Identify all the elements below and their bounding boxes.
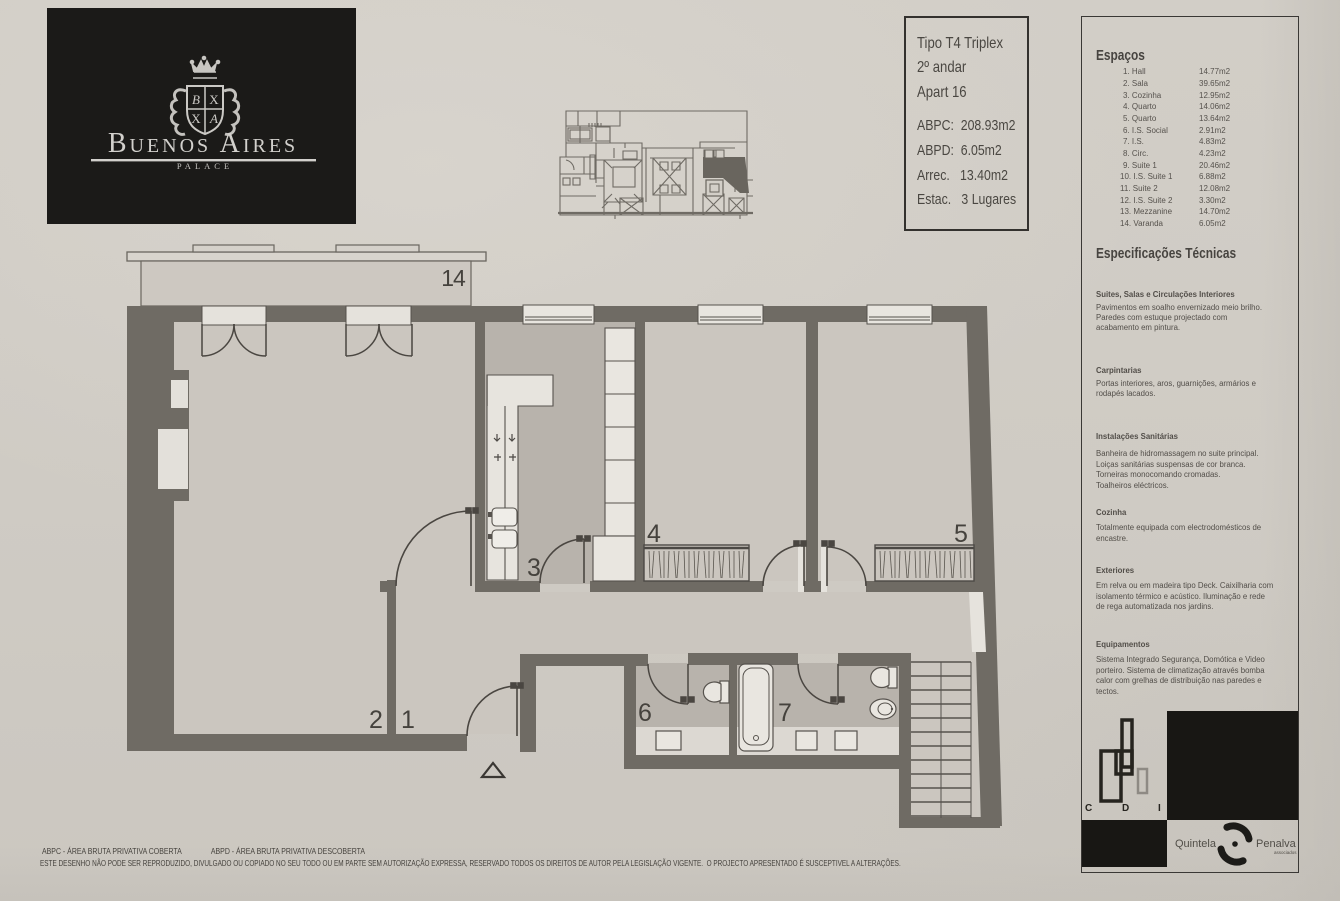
svg-text:I: I [1158, 803, 1161, 814]
svg-text:D: D [1122, 803, 1129, 814]
svg-text:14: 14 [441, 265, 466, 291]
svg-text:Quintela: Quintela [1175, 838, 1217, 850]
svg-text:7: 7 [778, 699, 792, 727]
svg-text:X: X [191, 111, 201, 126]
svg-text:6: 6 [638, 699, 652, 727]
svg-text:2: 2 [369, 706, 383, 734]
svg-text:A: A [209, 111, 218, 126]
svg-text:B: B [192, 92, 200, 107]
svg-text:1: 1 [401, 706, 415, 734]
svg-text:Buenos Aires: Buenos Aires [108, 128, 298, 159]
svg-text:4: 4 [647, 520, 661, 548]
svg-text:C: C [1085, 803, 1092, 814]
svg-text:3: 3 [527, 554, 541, 582]
svg-text:X: X [209, 92, 219, 107]
svg-text:Penalva: Penalva [1256, 838, 1297, 850]
svg-text:associados: associados [1274, 850, 1297, 855]
svg-text:5: 5 [954, 520, 968, 548]
svg-text:PALACE: PALACE [177, 161, 233, 171]
